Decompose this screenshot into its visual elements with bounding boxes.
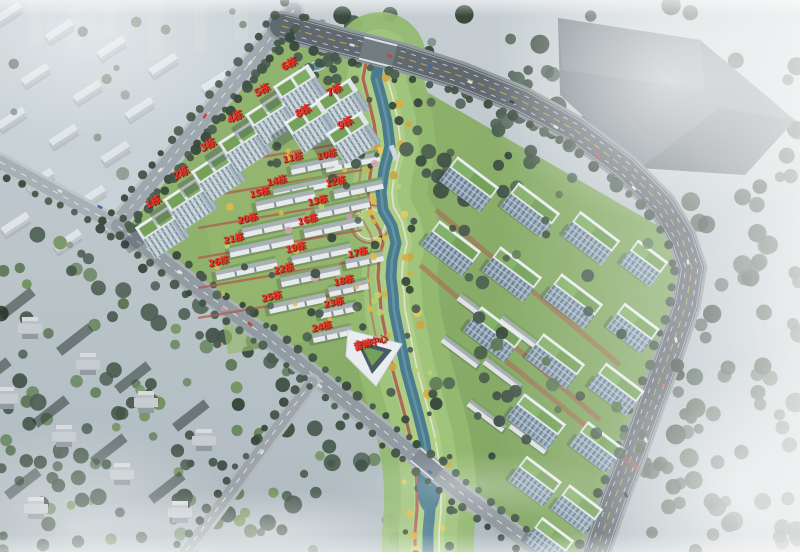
riverside-tree (416, 321, 425, 330)
street-tree (270, 410, 280, 420)
forest-tree (700, 332, 712, 344)
site-tree (269, 272, 275, 278)
street-tree (108, 209, 115, 216)
site-tree (307, 308, 315, 316)
forest-tree (774, 409, 785, 420)
site-tree (493, 160, 504, 171)
site-tree (355, 217, 362, 224)
context-tree (178, 308, 190, 320)
riverside-tree (402, 254, 409, 261)
forest-tree (754, 493, 771, 510)
context-tree (75, 493, 90, 508)
forest-tree (787, 318, 799, 330)
flowering-tree (354, 285, 359, 290)
context-lawn (43, 328, 54, 339)
riverside-tree (386, 333, 392, 339)
street-tree (539, 127, 549, 137)
flowering-tree (360, 250, 367, 257)
street-tree (115, 231, 124, 240)
forest-tree (754, 358, 771, 375)
old-town-tree (94, 134, 102, 142)
street-tree (269, 353, 275, 359)
street-tree (243, 453, 250, 460)
street-tree (32, 191, 39, 198)
site-tree (554, 406, 561, 413)
context-tree (91, 281, 106, 296)
street-tree (45, 197, 53, 205)
context-tree (53, 461, 63, 471)
street-tree (302, 375, 308, 381)
context-lawn (5, 445, 15, 455)
street-tree (645, 360, 656, 371)
site-tree (474, 412, 482, 420)
context-lawn (225, 359, 237, 371)
flowering-tree (285, 154, 292, 161)
site-tree (213, 340, 221, 348)
street-tree (199, 299, 207, 307)
park-tree (455, 98, 466, 109)
context-tree (141, 303, 159, 321)
street-tree (3, 174, 11, 182)
forest-tree (781, 492, 794, 505)
context-lawn (90, 387, 101, 398)
street-tree (353, 391, 363, 401)
flowering-tree (367, 305, 374, 312)
street-tree (270, 324, 278, 332)
site-tree (501, 390, 514, 403)
street-tree (190, 144, 201, 155)
street-tree (322, 394, 329, 401)
street-tree (625, 190, 632, 197)
street-tree (262, 20, 269, 27)
site-tree (374, 152, 379, 157)
park-tree (541, 65, 554, 78)
old-town-tree (9, 59, 19, 69)
street-tree (391, 448, 400, 457)
street-tree (196, 105, 204, 113)
context-lawn (112, 423, 121, 432)
riverside-tree (407, 225, 415, 233)
street-tree (644, 209, 655, 220)
riverside-tree (406, 121, 412, 127)
old-town-tree (131, 17, 142, 28)
context-tree (99, 372, 113, 386)
street-tree (440, 458, 447, 465)
site-tree (267, 302, 274, 309)
forest-tree (707, 528, 720, 541)
site-tree (476, 276, 490, 290)
forest-tree (720, 496, 731, 507)
flowering-tree (292, 301, 297, 306)
street-tree (484, 524, 491, 531)
context-tree (52, 479, 66, 493)
street-tree (370, 403, 376, 409)
riverside-tree (402, 479, 407, 484)
street-tree (170, 280, 180, 290)
context-tree (300, 470, 308, 478)
street-tree (255, 33, 263, 41)
context-tree (107, 311, 118, 322)
street-tree (406, 434, 412, 440)
street-tree (223, 477, 231, 485)
forest-tree (333, 6, 351, 24)
riverside-tree (366, 97, 372, 103)
street-tree (555, 136, 563, 144)
street-tree (185, 530, 193, 538)
site-tree (212, 290, 221, 299)
riverside-tree (403, 529, 408, 534)
street-tree (635, 199, 646, 210)
context-tree (260, 515, 276, 531)
street-tree (218, 113, 226, 121)
street-tree (266, 54, 274, 62)
context-tree (232, 398, 245, 411)
context-highrise (104, 2, 116, 36)
context-tree (37, 539, 50, 552)
park-tree (399, 142, 413, 156)
street-tree (306, 383, 313, 390)
street-tree (399, 456, 406, 463)
street-tree (425, 478, 431, 484)
context-tree (20, 454, 33, 467)
context-tree (145, 378, 157, 390)
street-tree (279, 397, 289, 407)
flowering-tree (221, 307, 225, 311)
forest-tree (783, 169, 797, 183)
forest-tree (734, 445, 749, 460)
site-tree (272, 158, 281, 167)
street-tree (322, 366, 329, 373)
site-tree (496, 327, 508, 339)
street-tree (511, 514, 520, 523)
riverside-tree (371, 219, 377, 225)
park-tree (416, 155, 427, 166)
street-tree (234, 94, 243, 103)
context-tree (54, 451, 62, 459)
street-tree (128, 186, 135, 193)
flowering-tree (285, 148, 290, 153)
street-tree (356, 422, 364, 430)
street-tree (158, 269, 166, 277)
site-tree (328, 174, 338, 184)
context-tree (324, 454, 341, 471)
flowering-tree (370, 253, 378, 261)
forest-tree (753, 179, 768, 194)
riverside-tree (408, 271, 413, 276)
site-tree (614, 447, 626, 459)
street-tree (186, 112, 195, 121)
context-lawn (53, 236, 67, 250)
street-tree (526, 120, 534, 128)
forest-tree (680, 448, 699, 467)
site-tree (642, 238, 653, 249)
street-tree (379, 443, 385, 449)
forest-tree (751, 385, 766, 400)
street-tree (444, 86, 451, 93)
street-tree (452, 469, 460, 477)
street-tree (196, 516, 205, 525)
forest-tree (530, 35, 549, 54)
street-tree (497, 506, 506, 515)
street-tree (436, 487, 443, 494)
street-tree (57, 202, 64, 209)
site-tree (610, 179, 624, 193)
park-tree (414, 98, 423, 107)
street-tree (95, 224, 105, 234)
street-tree (235, 326, 243, 334)
context-tree (115, 508, 125, 518)
context-tree (18, 350, 27, 359)
site-tree (576, 391, 586, 401)
flowering-tree (225, 243, 230, 248)
forest-tree (683, 5, 698, 20)
riverside-tree (390, 171, 398, 179)
context-highrise (194, 4, 207, 52)
context-lawn (67, 501, 76, 510)
street-tree (507, 110, 518, 121)
context-lawn (83, 268, 97, 282)
site-tree (443, 377, 455, 389)
site-tree (611, 402, 622, 413)
street-tree (158, 150, 164, 156)
street-tree (71, 209, 78, 216)
old-town-tree (113, 65, 119, 71)
street-tree (665, 297, 675, 307)
street-tree (458, 503, 466, 511)
riverside-tree (381, 291, 388, 298)
street-tree (202, 504, 212, 514)
street-tree (426, 450, 435, 459)
context-tree (307, 421, 323, 437)
forest-tree (776, 421, 790, 435)
context-tree (12, 373, 27, 388)
context-tree (276, 524, 287, 535)
street-tree (448, 498, 455, 505)
street-tree (263, 322, 269, 328)
site-tree (616, 329, 627, 340)
street-tree (575, 539, 585, 549)
street-tree (250, 75, 258, 83)
riverside-tree (394, 116, 403, 125)
riverside-tree (414, 368, 419, 373)
riverside-tree (427, 411, 432, 416)
context-tree (322, 440, 336, 454)
riverside-tree (406, 510, 414, 518)
street-tree (244, 43, 253, 52)
street-tree (302, 14, 309, 21)
forest-tree (661, 462, 674, 475)
context-lawn (118, 298, 129, 309)
forest-tree (685, 471, 703, 489)
context-tree (82, 423, 93, 434)
site-tree (555, 191, 563, 199)
street-tree (225, 71, 231, 77)
street-tree (177, 163, 187, 173)
riverside-tree (440, 525, 446, 531)
flowering-tree (214, 264, 220, 270)
context-tree (73, 448, 89, 464)
context-lawn (232, 425, 243, 436)
street-tree (146, 259, 154, 267)
park-tree (427, 98, 436, 107)
context-tree (335, 421, 345, 431)
context-lawn (244, 524, 257, 537)
forest-tree (782, 437, 797, 452)
context-tree (138, 264, 148, 274)
riverside-tree (428, 389, 437, 398)
street-tree (308, 353, 317, 362)
street-tree (656, 226, 664, 234)
forest-tree (666, 479, 682, 495)
old-town-tree (229, 8, 236, 15)
site-tree (563, 139, 576, 152)
street-tree (394, 426, 400, 432)
context-tree (30, 227, 46, 243)
street-tree (342, 413, 349, 420)
old-town-tree (121, 90, 130, 99)
context-tree (90, 489, 107, 506)
site-tree (512, 250, 521, 259)
flowering-tree (342, 168, 347, 173)
street-tree (226, 106, 236, 116)
context-tree (209, 458, 218, 467)
context-tree (66, 265, 77, 276)
context-lawn (70, 375, 83, 388)
street-tree (174, 126, 184, 136)
flowering-tree (371, 160, 378, 167)
forest-tree (756, 305, 772, 321)
park-tree (524, 145, 537, 158)
site-tree (542, 357, 551, 366)
park-tree (437, 153, 452, 168)
forest-tree (673, 497, 685, 509)
forest-tree (698, 216, 716, 234)
street-tree (215, 80, 223, 88)
street-tree (186, 290, 192, 296)
context-tree (30, 394, 47, 411)
street-tree (291, 385, 300, 394)
context-lawn (22, 279, 32, 289)
street-tree (257, 63, 268, 74)
context-highrise (28, 0, 42, 46)
forest-tree (734, 189, 751, 206)
street-tree (185, 261, 193, 269)
site-tree (474, 346, 488, 360)
forest-tree (754, 398, 766, 410)
context-tree (355, 459, 367, 471)
riverside-tree (365, 168, 370, 173)
context-lawn (231, 382, 243, 394)
street-tree (369, 430, 376, 437)
context-tree (115, 282, 131, 298)
forest-tree (455, 5, 474, 24)
street-tree (499, 107, 507, 115)
old-town-tree (427, 38, 436, 47)
street-tree (638, 376, 647, 385)
site-tree (492, 391, 501, 400)
street-tree (168, 172, 179, 183)
forest-tree (686, 368, 703, 385)
site-tree (493, 415, 505, 427)
street-tree (294, 345, 303, 354)
context-tree (217, 460, 227, 470)
riverside-tree (401, 415, 409, 423)
site-tree (491, 338, 504, 351)
old-town-tree (161, 25, 171, 35)
street-tree (121, 194, 128, 201)
street-tree (331, 403, 338, 410)
old-town-tree (78, 26, 88, 36)
site-tree (504, 152, 512, 160)
forest-tree (703, 305, 721, 323)
riverside-tree (401, 277, 410, 286)
riverside-tree (389, 102, 397, 110)
street-tree (199, 273, 207, 281)
old-town-tree (102, 74, 112, 84)
context-lawn (171, 324, 181, 334)
site-tree (492, 123, 506, 137)
site-tree (352, 302, 362, 312)
site-tree (429, 377, 442, 390)
park-tree (412, 125, 422, 135)
riverside-tree (435, 437, 440, 442)
context-tree (275, 378, 290, 393)
context-tree (77, 250, 85, 258)
context-highrise (234, 0, 248, 40)
site-tree (245, 306, 255, 316)
context-tree (310, 487, 322, 499)
flowering-tree (371, 298, 377, 304)
street-tree (239, 302, 245, 308)
site-tree (311, 269, 321, 279)
riverside-tree (401, 211, 408, 218)
forest-tree (694, 424, 704, 434)
site-tree (488, 452, 495, 459)
street-tree (98, 217, 107, 226)
flowering-tree (284, 226, 292, 234)
site-tree (503, 255, 510, 262)
street-tree (660, 315, 670, 325)
flowering-tree (292, 246, 300, 254)
aerial-rendering: 营销中心 1栋2栋3栋4栋5栋6栋7栋8栋9栋10栋11栋12栋13栋14栋15… (0, 0, 800, 552)
flowering-tree (327, 317, 332, 322)
street-tree (172, 251, 181, 260)
context-tree (171, 444, 184, 457)
street-tree (487, 498, 495, 506)
old-town-tree (239, 21, 247, 29)
site-tree (430, 397, 443, 410)
context-tree (195, 331, 204, 340)
site-tree (241, 263, 248, 270)
street-tree (498, 534, 505, 541)
riverside-tree (367, 209, 373, 215)
site-tree (546, 378, 559, 391)
park-tree (293, 52, 302, 61)
street-tree (168, 136, 176, 144)
riverside-tree (447, 454, 453, 460)
street-tree (135, 217, 142, 224)
street-tree (335, 376, 341, 382)
park-tree (323, 76, 333, 86)
site-tree (521, 434, 531, 444)
site-tree (465, 273, 474, 282)
street-tree (283, 335, 292, 344)
site-tree (542, 231, 550, 239)
context-lawn (234, 515, 246, 527)
old-town-tree (67, 242, 74, 249)
street-tree (173, 541, 180, 548)
old-town-tree (10, 108, 17, 115)
